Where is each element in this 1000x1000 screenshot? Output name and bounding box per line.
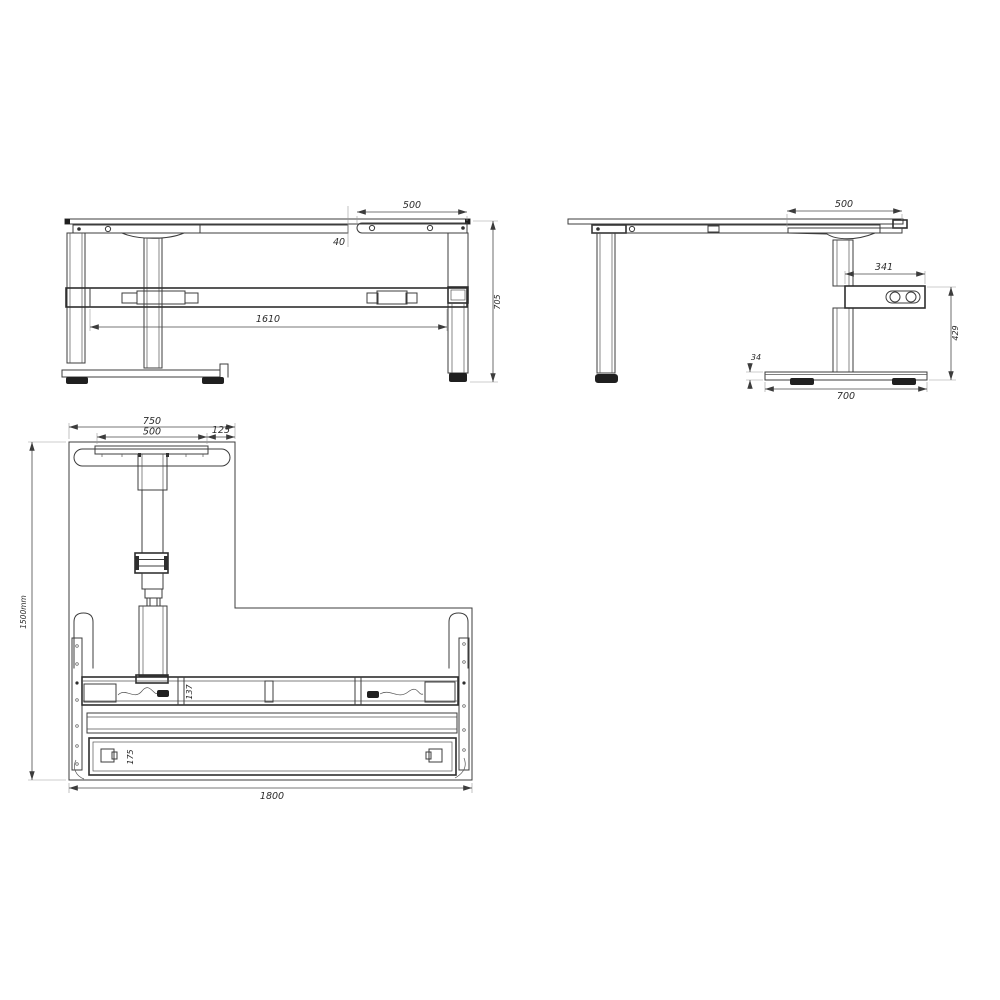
left-cable-plug	[157, 690, 169, 697]
side-geometry	[568, 219, 927, 385]
side-dim-foot-height: 34	[751, 353, 761, 362]
front-dim-height: 705	[493, 294, 502, 309]
plan-top-foot	[74, 449, 230, 466]
front-dim-rail-gap: 40	[333, 237, 345, 248]
front-foot	[62, 364, 228, 384]
side-dim-top-depth: 500	[835, 199, 853, 210]
plan-dim-depth: 1500mm	[19, 595, 28, 629]
front-middle-leg	[144, 238, 162, 368]
plan-dim-foot-depth: 175	[126, 749, 135, 764]
front-crossbar	[66, 288, 467, 307]
front-dim-leg-spacing: 1610	[256, 314, 280, 325]
front-geometry	[62, 219, 470, 384]
drawing-canvas: 500 40 1610 705	[0, 0, 1000, 1000]
right-cable	[380, 689, 423, 695]
side-dim-box-height: 429	[951, 325, 960, 340]
plan-dimensions: 750 500 125 1500mm 1800 137 175	[19, 416, 472, 802]
side-control-box	[845, 286, 925, 308]
technical-drawing: 500 40 1610 705	[0, 0, 1000, 1000]
plan-dim-plate-width: 500	[143, 427, 161, 438]
side-dim-control-box: 341	[875, 262, 893, 273]
side-frame-rail	[592, 225, 880, 233]
side-view: 500 341 429 34 700	[568, 199, 960, 402]
front-view: 500 40 1610 705	[62, 200, 502, 384]
side-dim-foot-length: 700	[837, 391, 855, 402]
front-left-leg	[67, 233, 85, 363]
plan-dim-overall-width: 1800	[260, 791, 284, 802]
front-dim-overhang: 500	[403, 200, 421, 211]
plan-dim-beam-depth: 137	[185, 683, 194, 699]
side-right-leg	[833, 240, 853, 372]
cable-grommet-icon	[886, 291, 920, 303]
plan-geometry	[69, 442, 472, 780]
left-cable	[118, 688, 158, 695]
plan-crossbar	[82, 677, 458, 705]
plan-center-column	[135, 454, 168, 683]
plan-dim-arm-width: 750	[143, 416, 161, 427]
plan-dim-edge-offset: 125	[212, 425, 230, 436]
plan-foot-bar	[89, 738, 456, 775]
side-foot	[765, 372, 927, 385]
side-tabletop	[568, 219, 903, 224]
plan-top-plate	[95, 446, 208, 454]
plan-rear-rail	[87, 713, 457, 733]
plan-view: 750 500 125 1500mm 1800 137 175	[19, 416, 472, 802]
front-frame-rail	[73, 225, 348, 233]
right-cable-plug	[367, 691, 379, 698]
side-left-leg	[595, 233, 618, 383]
